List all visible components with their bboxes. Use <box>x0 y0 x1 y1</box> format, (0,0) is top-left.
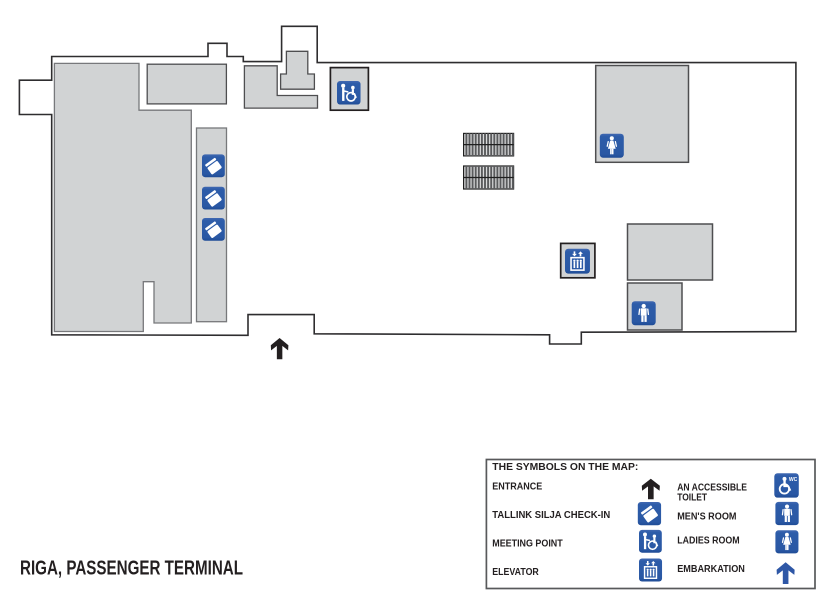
svg-text:ELEVATOR: ELEVATOR <box>492 567 539 578</box>
svg-text:RIGA, PASSENGER TERMINAL: RIGA, PASSENGER TERMINAL <box>20 558 243 580</box>
svg-text:ENTRANCE: ENTRANCE <box>492 481 542 492</box>
svg-text:THE SYMBOLS ON THE MAP:: THE SYMBOLS ON THE MAP: <box>492 461 638 473</box>
svg-text:MEN'S ROOM: MEN'S ROOM <box>677 511 736 522</box>
svg-text:EMBARKATION: EMBARKATION <box>677 564 745 575</box>
svg-text:TALLINK SILJA CHECK-IN: TALLINK SILJA CHECK-IN <box>492 510 610 521</box>
svg-text:LADIES ROOM: LADIES ROOM <box>677 536 739 547</box>
svg-text:MEETING POINT: MEETING POINT <box>492 539 562 550</box>
svg-text:TOILET: TOILET <box>677 493 707 504</box>
